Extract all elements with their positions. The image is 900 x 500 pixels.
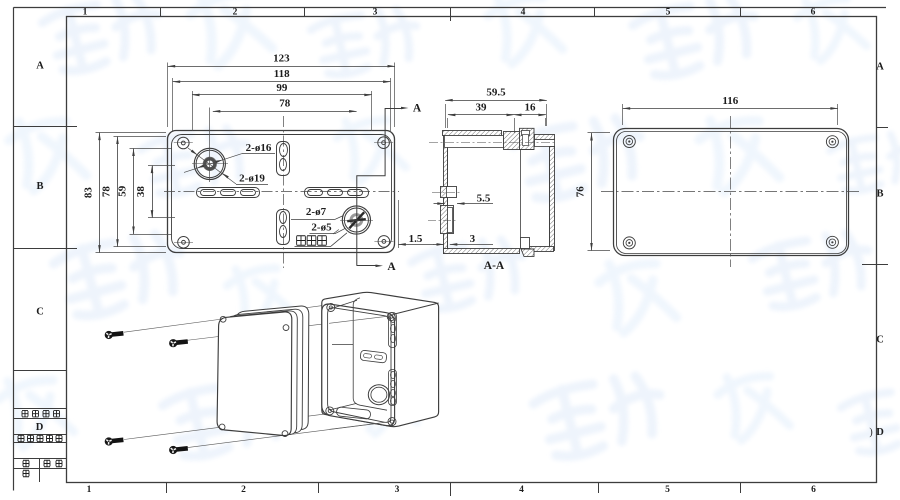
svg-text:76: 76 xyxy=(575,186,587,198)
svg-text:D: D xyxy=(876,427,884,438)
svg-text:D: D xyxy=(36,422,44,433)
svg-text:38: 38 xyxy=(135,186,147,198)
svg-text:5.5: 5.5 xyxy=(477,193,491,205)
svg-text:16: 16 xyxy=(524,101,536,113)
svg-text:2-ø7: 2-ø7 xyxy=(306,206,327,218)
svg-text:6: 6 xyxy=(811,485,816,495)
svg-text:83: 83 xyxy=(83,187,95,199)
svg-text:1: 1 xyxy=(83,8,88,18)
svg-text:6: 6 xyxy=(811,8,816,18)
svg-text:59: 59 xyxy=(117,185,129,197)
svg-text:A: A xyxy=(413,103,422,115)
svg-text:B: B xyxy=(876,189,883,200)
svg-text:3: 3 xyxy=(470,233,476,245)
svg-text:2-ø16: 2-ø16 xyxy=(246,142,272,154)
svg-text:3: 3 xyxy=(395,485,400,495)
svg-text:2-ø19: 2-ø19 xyxy=(239,173,265,185)
svg-text:59.5: 59.5 xyxy=(486,87,506,99)
svg-text:99: 99 xyxy=(276,82,288,94)
svg-text:78: 78 xyxy=(101,186,113,198)
svg-text:123: 123 xyxy=(273,53,290,65)
svg-text:1: 1 xyxy=(87,485,92,495)
svg-text:B: B xyxy=(36,181,43,192)
svg-text:3: 3 xyxy=(373,8,378,18)
svg-text:A: A xyxy=(387,261,396,273)
svg-text:2: 2 xyxy=(233,8,238,18)
svg-text:116: 116 xyxy=(722,95,738,107)
svg-text:39: 39 xyxy=(475,101,487,113)
svg-text:5: 5 xyxy=(665,485,670,495)
svg-text:1.5: 1.5 xyxy=(409,233,423,245)
svg-text:78: 78 xyxy=(279,98,291,110)
svg-text:A-A: A-A xyxy=(484,260,505,272)
svg-text:A: A xyxy=(36,61,44,72)
svg-text:C: C xyxy=(36,307,44,318)
svg-text:4: 4 xyxy=(521,8,526,18)
svg-text:C: C xyxy=(876,335,884,346)
svg-text:2: 2 xyxy=(241,485,246,495)
svg-text:2-ø5: 2-ø5 xyxy=(311,222,332,234)
svg-text:5: 5 xyxy=(666,8,671,18)
svg-text:4: 4 xyxy=(519,485,524,495)
svg-text:A: A xyxy=(876,62,884,73)
svg-text:118: 118 xyxy=(274,68,290,80)
svg-text:): ) xyxy=(869,427,872,438)
